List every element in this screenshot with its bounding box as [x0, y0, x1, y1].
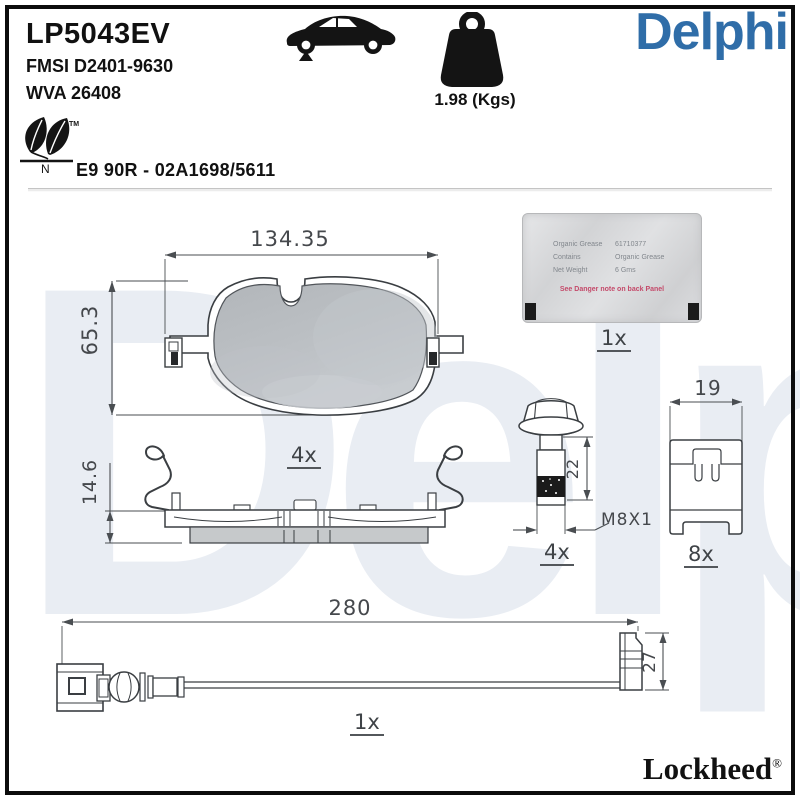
- sachet-label-text: Organic Grease61710377 ContainsOrganic G…: [553, 239, 685, 278]
- sachet-quantity: 1x: [597, 327, 631, 352]
- right-spring-clip: [437, 446, 463, 514]
- sachet-row-label: Net Weight: [553, 265, 615, 278]
- sensor-height-dimension: 27: [640, 633, 669, 690]
- pad-front-view-drawing: 134.35 65.3: [80, 222, 480, 432]
- bolt-head: [519, 399, 583, 436]
- lockheed-logo: Lockheed®: [643, 751, 782, 787]
- sachet-row-value: Organic Grease: [615, 252, 685, 265]
- wva-reference: WVA 26408: [26, 83, 121, 104]
- bolt-drawing: 22 M8X1: [503, 392, 673, 572]
- clip-width-dimension: 19: [670, 378, 742, 442]
- pad-friction-material: [210, 284, 437, 409]
- car-icon: [283, 12, 398, 62]
- sachet-corner-tab: [525, 303, 536, 320]
- eco-tm: TM: [69, 121, 79, 128]
- clip-body: [670, 440, 742, 534]
- bolt-thread-value: M8X1: [601, 510, 653, 530]
- registered-mark: ®: [772, 756, 782, 771]
- sachet-row-value: 61710377: [615, 239, 685, 252]
- sachet-row-value: 6 Gms: [615, 265, 685, 278]
- sensor-end-clip: [620, 633, 642, 690]
- weight-value: 1.98 (Kgs): [420, 90, 530, 110]
- sachet-row-label: Contains: [553, 252, 615, 265]
- pad-right-retainer-clip: [427, 338, 439, 367]
- sensor-length-dimension: 280: [62, 596, 638, 665]
- clip-width-value: 19: [694, 378, 721, 400]
- fmsi-reference: FMSI D2401-9630: [26, 56, 173, 77]
- car-silhouette: [287, 16, 396, 61]
- pad-side-friction: [190, 527, 428, 543]
- sachet-corner-tab: [688, 303, 699, 320]
- sensor-connector: [57, 664, 184, 711]
- sachet-row-label: Organic Grease: [553, 239, 615, 252]
- pad-width-value: 134.35: [250, 227, 329, 251]
- sensor-height-value: 27: [640, 651, 660, 673]
- bolt-quantity: 4x: [540, 541, 574, 566]
- pad-height-value: 65.3: [80, 305, 102, 356]
- left-spring-clip: [145, 446, 171, 514]
- eco-letter-n: N: [41, 162, 50, 176]
- eco-leaf-icon: TM N: [17, 112, 79, 178]
- bolt-shaft: [537, 435, 565, 505]
- header-separator: [28, 188, 772, 192]
- lockheed-wordmark: Lockheed: [643, 751, 772, 786]
- sensor-length-value: 280: [328, 596, 371, 620]
- pad-side-backplate: [165, 493, 445, 527]
- sachet-warning-text: See Danger note on back Panel: [523, 286, 701, 293]
- bolt-length-value: 22: [563, 459, 582, 479]
- bolt-length-dimension: 22: [563, 437, 593, 500]
- sensor-wire: [184, 682, 622, 688]
- datasheet-page: Delphi LP5043EV FMSI D2401-9630 WVA 2640…: [0, 0, 800, 800]
- clip-quantity: 8x: [684, 543, 718, 568]
- weight-icon: [430, 12, 514, 90]
- delphi-logo: Delphi: [635, 2, 788, 62]
- homologation-number: E9 90R - 02A1698/5611: [76, 160, 275, 181]
- pad-side-view-drawing: 14.6: [78, 432, 478, 552]
- pad-left-retainer-clip: [165, 338, 182, 367]
- sensor-quantity: 1x: [350, 711, 384, 736]
- abutment-clip-drawing: 19: [653, 378, 783, 568]
- pad-thickness-value: 14.6: [79, 459, 101, 505]
- part-number: LP5043EV: [26, 18, 170, 51]
- bolt-thread-callout: M8X1: [513, 505, 653, 534]
- grease-sachet-photo: Organic Grease61710377 ContainsOrganic G…: [522, 213, 702, 323]
